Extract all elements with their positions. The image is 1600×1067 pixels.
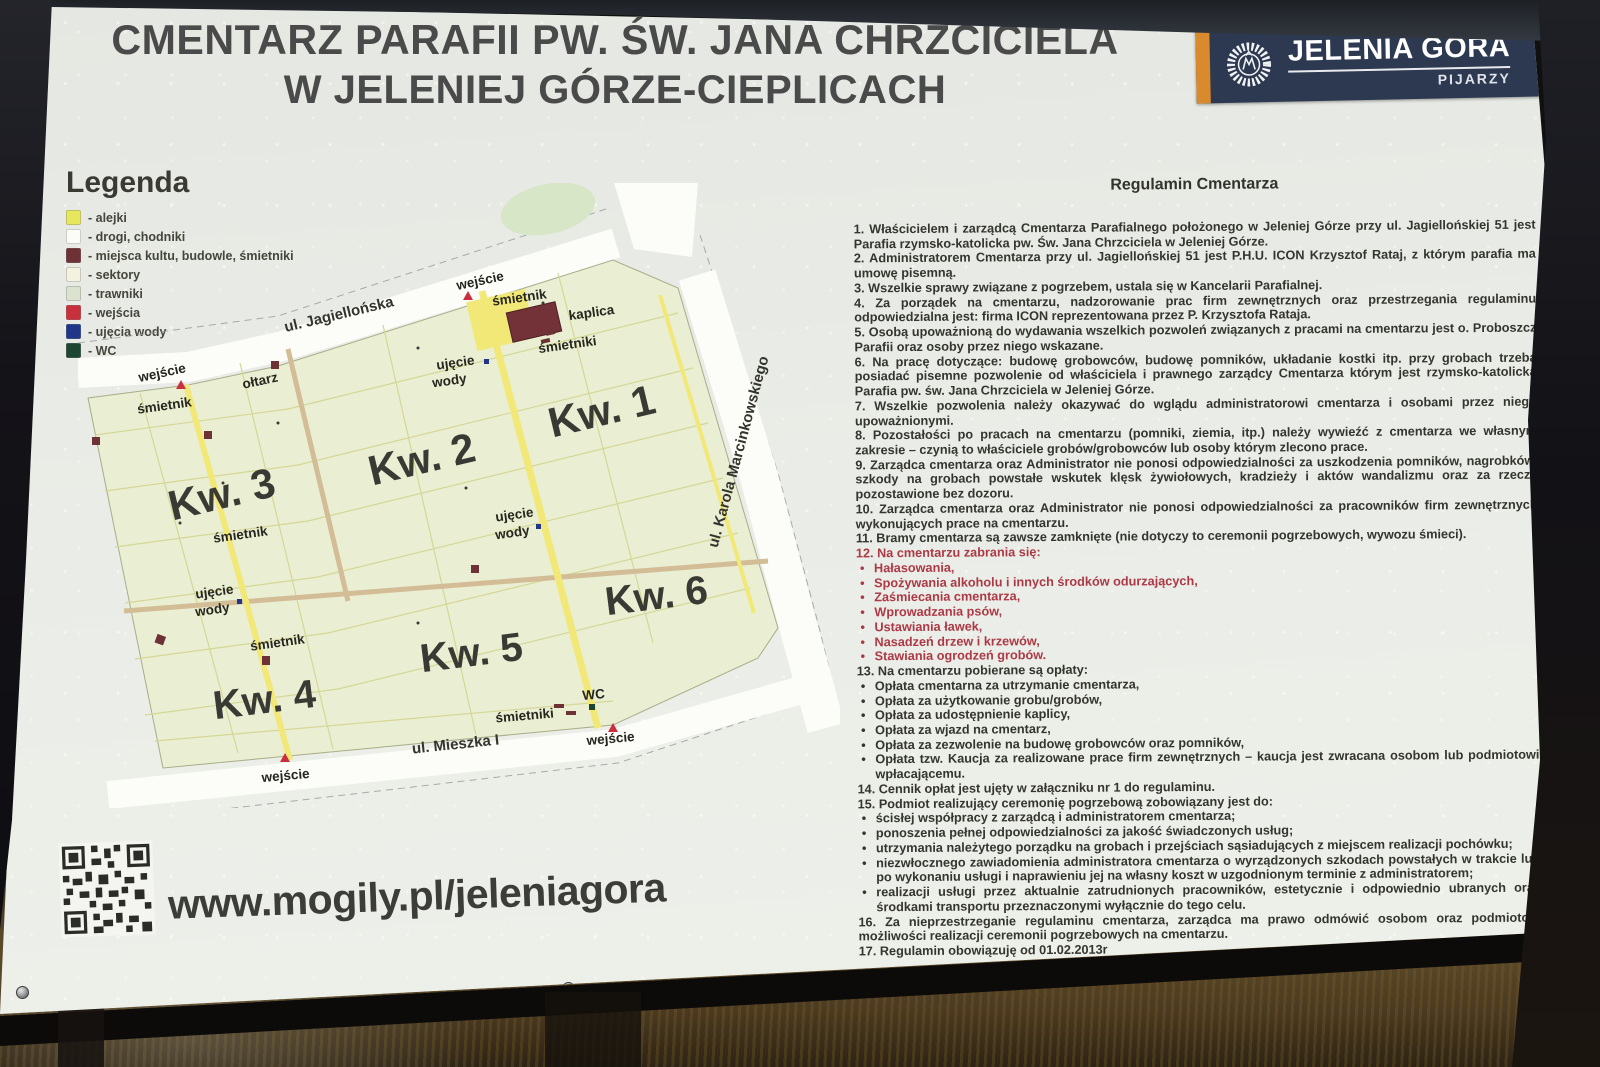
title-line-2: W JELENIEJ GÓRZE-CIEPLICACH xyxy=(0,68,1230,113)
road-fork-north xyxy=(614,183,698,257)
regulation-item: 7. Wszelkie pozwolenia należy okazywać d… xyxy=(855,394,1537,428)
information-board: CMENTARZ PARAFII PW. ŚW. JANA CHRZCICIEL… xyxy=(0,0,1600,1067)
website-url: www.mogily.pl/jeleniagora xyxy=(167,862,728,929)
cemetery-regulations: Regulamin Cmentarza 1. Właścicielem i za… xyxy=(853,174,1540,959)
regulation-item: 10. Zarządca cmentarza oraz Administrato… xyxy=(856,498,1538,532)
logo-accent-stripe xyxy=(1195,27,1211,103)
regulation-item: 9. Zarządca cmentarza oraz Administrator… xyxy=(855,453,1537,502)
regulation-item: 8. Pozostałości po pracach na cmentarzu … xyxy=(855,424,1537,458)
cemetery-map: ul. Jagiellońska ul. Karola Marcinkowski… xyxy=(78,183,840,808)
wc-marker xyxy=(589,704,595,710)
regulation-item: 6. Na pracę dotyczące: budowę grobowców,… xyxy=(855,350,1537,399)
board-post-center xyxy=(545,992,641,1067)
regulations-heading: Regulamin Cmentarza xyxy=(853,174,1535,197)
page-title: CMENTARZ PARAFII PW. ŚW. JANA CHRZCICIEL… xyxy=(0,16,1230,113)
lawn-patch xyxy=(496,183,600,243)
logo-subtitle: PIJARZY xyxy=(1288,71,1511,90)
regulation-item: 2. Administratorem Cmentarza przy ul. Ja… xyxy=(854,247,1536,281)
regulation-item: 4. Za porządek na cmentarzu, nadzorowani… xyxy=(854,291,1536,325)
regulation-item: Opłata tzw. Kaucja za realizowane prace … xyxy=(857,748,1539,782)
regulations-list: 1. Właścicielem i zarządcą Cmentarza Par… xyxy=(854,218,1541,959)
piarist-emblem-icon xyxy=(1221,37,1276,92)
label-wc: WC xyxy=(582,686,606,703)
regulation-item: 1. Właścicielem i zarządcą Cmentarza Par… xyxy=(854,218,1536,252)
screw-bottom-left xyxy=(16,986,29,999)
regulation-item: 5. Osobą upoważnioną do wydawania wszelk… xyxy=(854,321,1536,355)
regulation-item: realizacji usługi przez aktualnie zatrud… xyxy=(858,881,1540,915)
board-post-left xyxy=(58,1008,104,1067)
qr-code xyxy=(58,840,155,937)
regulation-item: niezwłocznego zawiadomienia administrato… xyxy=(858,851,1540,885)
